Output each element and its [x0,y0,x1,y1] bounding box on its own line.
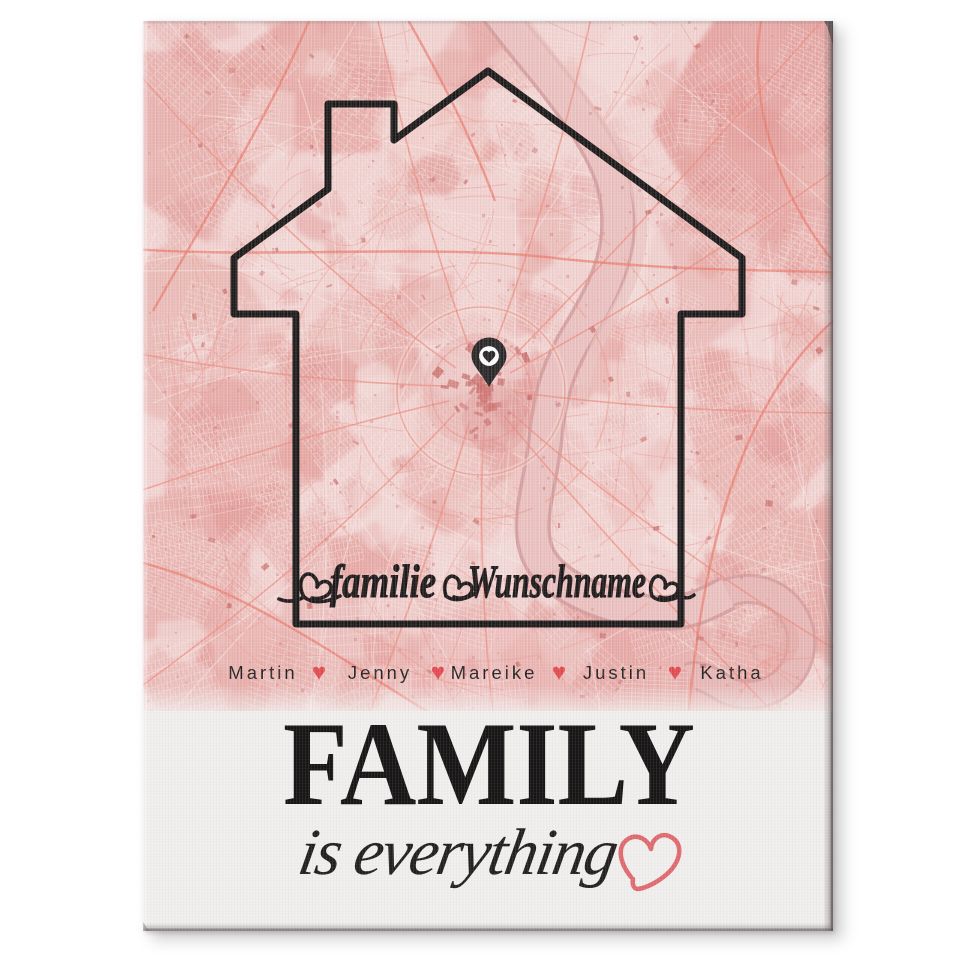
svg-text:♥: ♥ [431,659,445,686]
svg-text:Martin: Martin [228,662,297,683]
svg-text:♥: ♥ [552,659,566,686]
svg-text:Justin: Justin [583,662,649,683]
svg-text:Katha: Katha [700,662,763,683]
svg-text:Mareike: Mareike [451,662,538,683]
svg-text:Jenny: Jenny [348,662,412,683]
svg-text:Wunschname: Wunschname [468,556,646,608]
svg-text:♥: ♥ [668,659,682,686]
svg-text:FAMILY: FAMILY [283,697,695,830]
svg-text:familie: familie [330,556,436,608]
svg-text:♥: ♥ [312,659,326,686]
svg-text:is everything: is everything [293,816,624,888]
